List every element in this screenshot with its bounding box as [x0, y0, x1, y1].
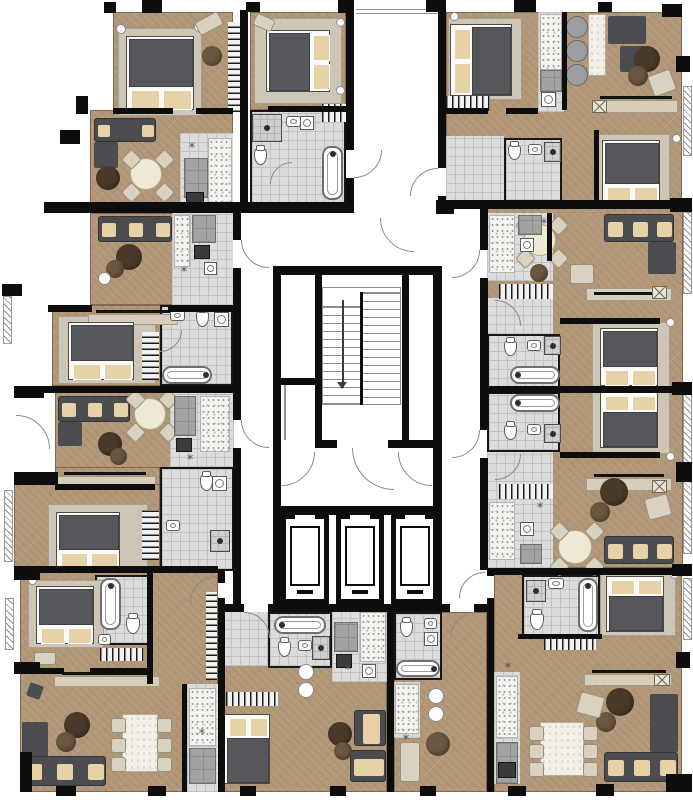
pouf: [334, 742, 352, 760]
cush: [363, 727, 380, 744]
stove: [498, 762, 516, 778]
fixdot: [550, 343, 556, 349]
side-table: [666, 452, 675, 461]
sink: [527, 424, 541, 435]
pouf: [600, 478, 628, 506]
elev-bar: [352, 590, 367, 594]
wall: [433, 266, 442, 612]
bed: [56, 512, 120, 568]
fixdot: [550, 149, 556, 155]
bathtub: [100, 578, 121, 630]
stove: [194, 245, 210, 259]
side-table: [336, 86, 345, 95]
bed-duvet: [227, 738, 269, 783]
wc-t: [256, 145, 265, 151]
wardrobe: [206, 592, 217, 680]
kitchen-symbol: *: [400, 736, 412, 748]
bed-duvet: [603, 331, 657, 367]
sink-b: [102, 637, 107, 642]
sink-b: [531, 427, 537, 432]
bathtub: [162, 366, 212, 384]
wall: [487, 568, 494, 576]
wc-t: [280, 637, 289, 643]
dining-table: [588, 14, 606, 76]
bed-p: [41, 628, 65, 644]
elev-car: [345, 526, 375, 586]
wall: [55, 484, 155, 490]
wall: [518, 634, 602, 639]
kitchen-counter: [540, 70, 562, 92]
facade-column: [676, 462, 692, 482]
wall: [480, 458, 488, 570]
bed-p: [313, 35, 330, 61]
facade-column: [330, 786, 346, 796]
kitchen-symbol: *: [342, 666, 354, 678]
sink-b: [552, 581, 560, 586]
seat-s: [529, 726, 544, 741]
floor-plan: *********: [0, 0, 693, 800]
pouf: [56, 732, 76, 752]
wall: [438, 10, 446, 168]
wall: [387, 612, 394, 792]
kitchen-counter: [189, 748, 216, 784]
side-table: [98, 272, 111, 285]
cabinet: [652, 480, 667, 493]
facade-column: [508, 786, 526, 796]
bed: [600, 392, 658, 448]
facade-column: [662, 4, 682, 17]
cabinet: [654, 674, 670, 686]
sink: [298, 640, 312, 651]
bed-duvet: [269, 33, 310, 91]
seat-s: [111, 738, 126, 753]
bed-duvet: [59, 515, 119, 550]
sofa: [94, 118, 156, 142]
tile-floor: [446, 136, 504, 202]
seat-s: [529, 762, 544, 777]
cush: [142, 125, 154, 137]
sink-b: [290, 119, 297, 124]
fixdot: [515, 372, 521, 378]
fixdot: [264, 125, 270, 131]
wall: [480, 207, 488, 250]
cush: [608, 544, 623, 559]
wall: [182, 684, 187, 792]
facade-column: [676, 56, 690, 72]
shower: [252, 114, 282, 142]
bathtub: [510, 366, 560, 384]
facade-column: [666, 774, 692, 792]
bathtub: [578, 578, 598, 632]
sink: [166, 520, 180, 531]
wash-d: [544, 95, 553, 104]
stool: [566, 16, 588, 38]
bed-duvet: [129, 39, 193, 87]
wc-t: [506, 421, 515, 427]
bed-p: [250, 718, 268, 737]
counter-marble: [360, 612, 386, 662]
sink: [98, 634, 111, 645]
bed: [602, 140, 660, 204]
fixdot: [318, 645, 324, 651]
fixdot: [330, 151, 336, 157]
facade-column: [672, 564, 692, 576]
seat-s: [529, 744, 544, 759]
seat-s: [157, 738, 172, 753]
washing-machine: [541, 92, 556, 107]
bed-p: [454, 63, 471, 94]
elev-car: [290, 526, 320, 586]
furniture-dark: [648, 242, 676, 274]
facade-column: [672, 382, 692, 395]
side-table: [428, 688, 444, 704]
seat-s: [111, 718, 126, 733]
stove: [176, 438, 192, 452]
tub-in: [327, 151, 338, 195]
counter-marble: [489, 215, 515, 273]
shower: [544, 424, 561, 443]
kitchen-symbol: *: [186, 144, 198, 156]
cush: [633, 222, 648, 237]
wall: [90, 668, 150, 674]
facade-column: [14, 472, 58, 485]
cush: [657, 222, 672, 237]
bed: [36, 586, 94, 644]
washing-machine: [204, 262, 217, 275]
elev-bar: [297, 590, 312, 594]
sink: [424, 618, 437, 629]
fixdot: [203, 372, 209, 378]
bed-p: [638, 580, 662, 595]
tv: [594, 474, 664, 477]
kitchen-symbol: *: [538, 220, 550, 232]
outline-line: [322, 287, 323, 308]
sink-b: [170, 523, 176, 528]
facade-column: [436, 200, 454, 214]
cush: [634, 760, 650, 776]
side-table: [666, 318, 675, 327]
wall: [560, 318, 660, 324]
wash-d: [523, 241, 531, 249]
facade-column: [14, 386, 44, 398]
washing-machine: [520, 238, 534, 252]
outline-line: [356, 13, 438, 14]
wall: [273, 506, 441, 515]
wall: [594, 130, 599, 202]
wall: [506, 108, 538, 114]
sofa: [604, 536, 674, 564]
cush: [129, 223, 143, 237]
shower: [312, 636, 330, 660]
sink-b: [302, 643, 308, 648]
bed-p: [611, 580, 635, 595]
bed-p: [104, 364, 132, 380]
bed: [606, 576, 664, 632]
door-arc: [241, 212, 297, 268]
fixdot: [533, 588, 539, 594]
wall: [147, 571, 153, 684]
kitchen-counter: [334, 622, 358, 652]
side-table: [428, 706, 444, 722]
seat-s: [157, 718, 172, 733]
facade-column: [426, 0, 446, 12]
seat-s: [111, 757, 126, 772]
cush: [88, 403, 102, 417]
round-table: [558, 530, 592, 564]
fixdot: [515, 400, 521, 406]
bed-p: [313, 64, 330, 90]
wardrobe: [142, 510, 159, 560]
cabinet: [592, 100, 607, 113]
side-table: [336, 18, 345, 27]
cush: [88, 764, 104, 780]
wardrobe: [142, 332, 159, 380]
wardrobe: [226, 692, 278, 706]
dining-table: [540, 722, 584, 776]
vent-hatch: [683, 212, 692, 294]
tub-in: [105, 583, 116, 625]
cush: [62, 403, 76, 417]
wall: [233, 448, 241, 604]
wash-d: [207, 265, 214, 272]
seat-s: [583, 762, 598, 777]
bed-p: [73, 364, 101, 380]
fixdot: [431, 666, 437, 672]
fixdot: [585, 583, 591, 589]
bed-p: [131, 90, 160, 110]
wall: [44, 202, 354, 213]
bed: [450, 24, 512, 96]
sink: [528, 144, 542, 155]
vent-hatch: [683, 86, 692, 156]
bed: [600, 328, 658, 386]
wall: [196, 108, 233, 114]
wc-t: [128, 613, 138, 619]
bed-p: [605, 396, 629, 411]
tub-in: [583, 583, 593, 627]
wc-t: [202, 471, 211, 477]
bed-duvet: [472, 27, 511, 95]
facade-column: [420, 786, 436, 796]
wall: [14, 386, 241, 393]
facade-column: [104, 2, 116, 13]
pouf: [590, 502, 610, 522]
vent-hatch: [3, 296, 12, 344]
kitchen-symbol: *: [178, 268, 190, 280]
counter-marble: [208, 138, 232, 204]
tub-in: [515, 399, 555, 407]
wall: [480, 278, 488, 430]
wall: [48, 305, 92, 312]
dining-table: [122, 714, 158, 772]
washing-machine: [214, 312, 229, 327]
bathtub: [274, 616, 326, 634]
wall: [113, 108, 173, 114]
side-table: [298, 664, 314, 680]
washing-machine: [212, 476, 227, 491]
sink-b: [531, 343, 537, 348]
seat-s: [157, 757, 172, 772]
tub-in: [167, 371, 207, 379]
sofa: [98, 216, 172, 242]
counter-marble: [540, 14, 562, 70]
facade-column: [14, 568, 40, 580]
fixdot: [108, 583, 114, 589]
bed-p: [163, 90, 192, 110]
kitchen-symbol: *: [534, 504, 546, 516]
bed-duvet: [39, 589, 93, 625]
side-table: [450, 12, 459, 21]
wall: [487, 598, 494, 792]
bed-duvet: [609, 596, 663, 631]
wall: [480, 386, 683, 393]
wall: [474, 604, 488, 612]
wall: [279, 378, 317, 385]
wall: [388, 440, 442, 448]
vent-hatch: [683, 470, 692, 554]
wall: [233, 206, 241, 240]
tub-in: [279, 621, 321, 629]
seat-s: [583, 744, 598, 759]
elev-bar: [407, 590, 422, 594]
tv: [64, 472, 146, 475]
wall: [268, 604, 388, 612]
sofa: [22, 756, 106, 786]
bed-duvet: [603, 412, 657, 447]
wall: [446, 108, 488, 114]
kitchen-counter: [174, 396, 196, 436]
wall: [268, 106, 346, 112]
wash-d: [427, 635, 435, 643]
cush: [102, 223, 116, 237]
bed-p: [632, 370, 656, 386]
washing-machine: [520, 522, 534, 536]
side-table: [672, 134, 681, 143]
tv: [600, 96, 672, 99]
counter-marble: [489, 502, 515, 560]
facade-column: [60, 130, 80, 144]
wall: [494, 568, 684, 575]
hd: [337, 382, 347, 394]
outline-line: [322, 287, 401, 288]
facade-column: [596, 784, 614, 796]
sink-b: [532, 147, 538, 152]
shower: [544, 142, 561, 162]
wall: [443, 200, 683, 209]
facade-column: [14, 662, 40, 674]
cush: [156, 223, 170, 237]
sofa: [58, 396, 130, 422]
wardrobe: [100, 648, 144, 661]
facade-column: [2, 284, 22, 296]
bed: [126, 36, 194, 110]
wc-t: [506, 337, 515, 343]
pouf: [426, 732, 450, 756]
wall: [346, 10, 354, 150]
facade-column: [76, 96, 88, 114]
tub-in: [401, 665, 435, 672]
cush: [367, 759, 384, 776]
wall: [218, 604, 225, 792]
bed-p: [68, 628, 92, 644]
sofa: [350, 750, 386, 782]
bed-p: [229, 718, 247, 737]
bed-duvet: [71, 325, 133, 361]
wall: [218, 604, 244, 612]
sofa: [604, 214, 674, 242]
round-table: [134, 398, 166, 430]
shower: [544, 336, 561, 355]
pouf: [628, 66, 648, 86]
furniture-dark: [608, 16, 646, 44]
wall: [346, 178, 354, 210]
wash-d: [217, 315, 226, 324]
elevator: [391, 514, 439, 604]
vent-hatch: [683, 578, 692, 640]
facade-column: [338, 0, 354, 13]
cush: [608, 760, 624, 776]
facade-column: [676, 652, 690, 668]
cush: [657, 544, 672, 559]
wall: [273, 266, 281, 612]
pouf: [202, 46, 222, 66]
chair: [400, 742, 420, 782]
pouf: [606, 688, 634, 716]
seat-s: [583, 726, 598, 741]
sink: [527, 340, 541, 351]
tv: [96, 310, 170, 313]
fixdot: [279, 622, 285, 628]
kitchen-counter: [192, 215, 216, 243]
stool: [566, 40, 588, 62]
cush: [57, 764, 73, 780]
wall: [240, 10, 248, 210]
sink-b: [428, 621, 433, 626]
facade-column: [240, 786, 256, 796]
wash-d: [303, 119, 311, 127]
pouf: [96, 166, 120, 190]
fixdot: [217, 538, 223, 544]
staircase: [362, 292, 401, 405]
tv-console: [54, 676, 160, 687]
side-table: [298, 682, 314, 698]
shower: [526, 580, 546, 602]
tv: [592, 670, 666, 673]
stool: [566, 64, 588, 86]
elev-car: [400, 526, 430, 586]
wall: [360, 292, 363, 405]
wall: [388, 604, 450, 612]
kitchen-counter: [520, 544, 542, 564]
counter-marble: [395, 684, 419, 734]
cush: [608, 222, 623, 237]
furniture-dark: [94, 142, 118, 168]
vent-hatch: [5, 598, 14, 650]
vent-hatch: [4, 490, 13, 562]
kitchen-symbol: *: [184, 456, 196, 468]
pouf: [530, 264, 548, 282]
wardrobe: [499, 484, 553, 499]
bathtub: [510, 394, 560, 412]
facade-column: [142, 0, 162, 13]
facade-column: [246, 2, 260, 12]
facade-column: [670, 198, 692, 212]
counter-marble: [200, 396, 230, 452]
kitchen-symbol: *: [196, 730, 208, 742]
facade-column: [20, 752, 32, 792]
wardrobe: [499, 284, 553, 299]
facade-column: [514, 0, 536, 12]
